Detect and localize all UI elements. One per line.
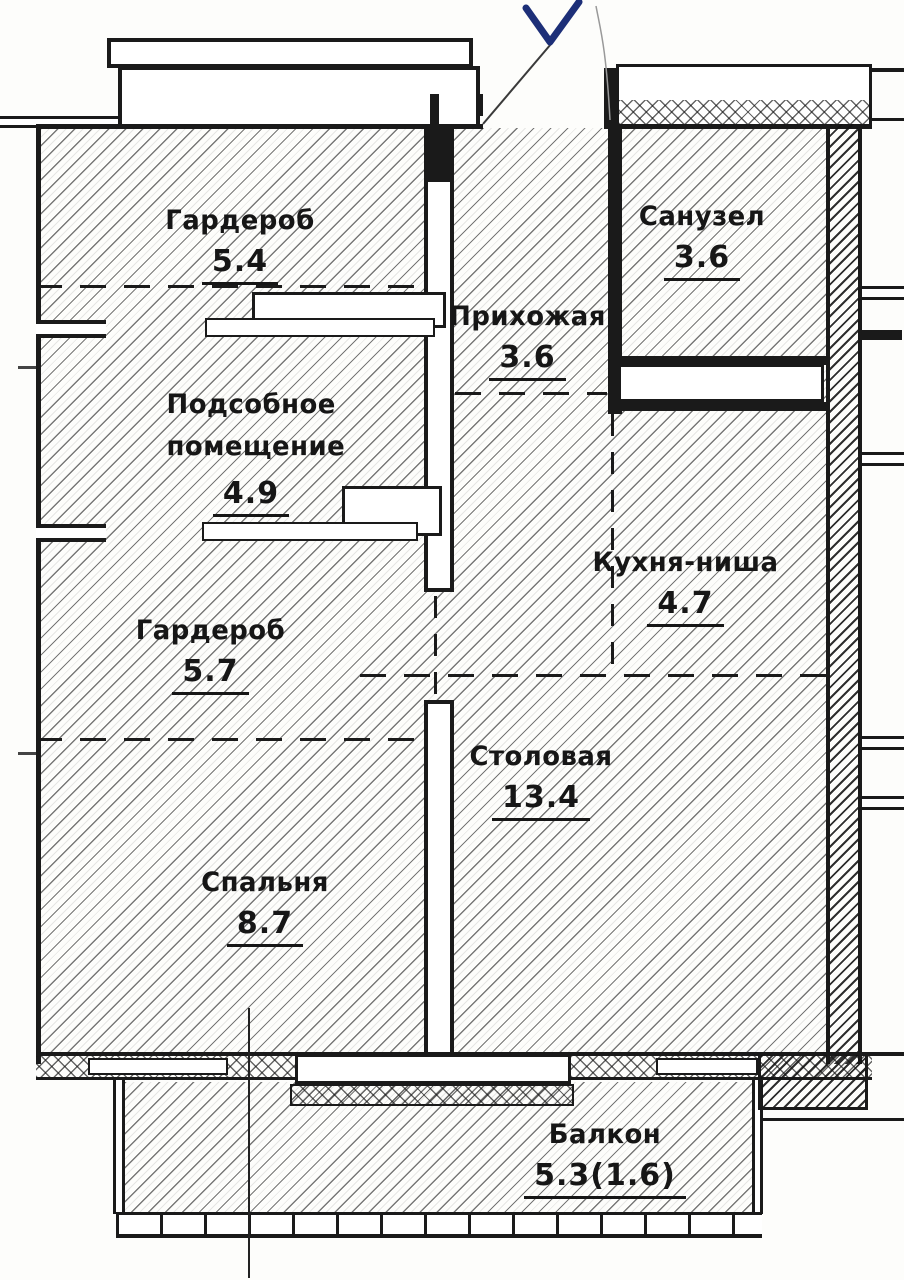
entrance-jamb-left [430, 94, 439, 126]
room-label-garderob-mid: Гардероб 5.7 [113, 610, 308, 695]
room-label-spalnya: Спальня 8.7 [175, 862, 355, 947]
dashed-line-hallway [455, 392, 607, 395]
room-label-prihozhaya: Прихожая 3.6 [440, 296, 615, 381]
balcony-railing [116, 1212, 762, 1238]
floor-plan: Гардероб 5.4 Санузел 3.6 Прихожая 3.6 По… [0, 0, 904, 1280]
section-line [248, 1008, 250, 1278]
wall-top-left-step [107, 38, 473, 68]
wall-right-stub-3 [862, 452, 904, 466]
room-area-stolovaya: 13.4 [492, 780, 590, 821]
room-label-sanuzel: Санузел 3.6 [612, 196, 792, 281]
room-name-balkon: Балкон [519, 1114, 692, 1156]
wall-central-gap-dashed [434, 596, 437, 698]
room-label-garderob-top: Гардероб 5.4 [140, 200, 340, 285]
room-label-stolovaya: Столовая 13.4 [450, 736, 632, 821]
wall-top-left-block [118, 66, 480, 128]
dashed-line-wardrobe-mid [36, 738, 426, 741]
room-name-sanuzel: Санузел [616, 196, 789, 238]
wall-top-right-ext1 [872, 68, 904, 72]
wall-left [36, 124, 41, 1064]
wall-right-column [826, 124, 862, 1064]
wall-right-stub-2 [862, 330, 902, 340]
wall-bottom-right-ext2 [758, 1118, 904, 1121]
wall-right-stub-1 [862, 286, 904, 300]
room-area-podsobnoe: 4.9 [213, 476, 289, 517]
entrance-door-swing-line [483, 44, 551, 124]
window-right [656, 1058, 758, 1075]
balcony-door-block [295, 1054, 571, 1084]
builtin-shelf-bathroom [618, 364, 824, 402]
wall-stub-left-2 [36, 524, 106, 542]
wall-left-tick-1 [18, 366, 36, 369]
entrance-jamb-dashed [480, 94, 483, 126]
wall-stub-left-1 [36, 320, 106, 338]
builtin-shelf-2b [202, 522, 418, 541]
room-name-podsobnoe: Подсобное помещение [167, 384, 336, 468]
wall-right-stub-5 [862, 796, 904, 810]
room-name-garderob-top: Гардероб [144, 200, 336, 242]
room-area-balkon: 5.3(1.6) [524, 1158, 686, 1199]
room-area-sanuzel: 3.6 [664, 240, 740, 281]
wall-bathroom-horizontal-bottom [615, 402, 826, 411]
wall-bottom-right-ext1 [868, 1052, 904, 1056]
room-area-garderob-top: 5.4 [202, 244, 278, 285]
entrance-jamb-right [604, 68, 616, 126]
wall-top-left-line [36, 124, 483, 129]
wall-top-right-hatch [619, 100, 869, 124]
dashed-line-kitchen-bottom [360, 674, 826, 677]
room-name-prihozhaya: Прихожая [444, 296, 612, 338]
wall-right-stub-4 [862, 736, 904, 750]
room-name-spalnya: Спальня [179, 862, 352, 904]
builtin-shelf-1b [205, 318, 435, 337]
wall-central-top [424, 128, 454, 182]
room-name-stolovaya: Столовая [454, 736, 629, 778]
room-name-kuhnya: Кухня-ниша [592, 542, 779, 584]
balcony-wall-left [113, 1080, 125, 1214]
dashed-line-wardrobe-top [36, 285, 426, 288]
checkmark-icon [526, 2, 579, 42]
room-name-garderob-mid: Гардероб [117, 610, 304, 652]
wall-top-right-band [616, 64, 872, 124]
balcony-sill-band [290, 1084, 574, 1106]
room-label-podsobnoe: Подсобное помещение 4.9 [163, 384, 339, 517]
room-area-kuhnya: 4.7 [647, 586, 723, 627]
room-area-garderob-mid: 5.7 [172, 654, 248, 695]
wall-bottom-right-corner [758, 1052, 868, 1110]
wall-top-right-ext2 [872, 118, 904, 121]
window-left [88, 1058, 228, 1075]
room-area-spalnya: 8.7 [227, 906, 303, 947]
room-label-kuhnya: Кухня-ниша 4.7 [588, 542, 783, 627]
room-label-balkon: Балкон 5.3(1.6) [515, 1114, 695, 1199]
room-area-prihozhaya: 3.6 [489, 340, 565, 381]
wall-left-tick-2 [18, 752, 36, 755]
